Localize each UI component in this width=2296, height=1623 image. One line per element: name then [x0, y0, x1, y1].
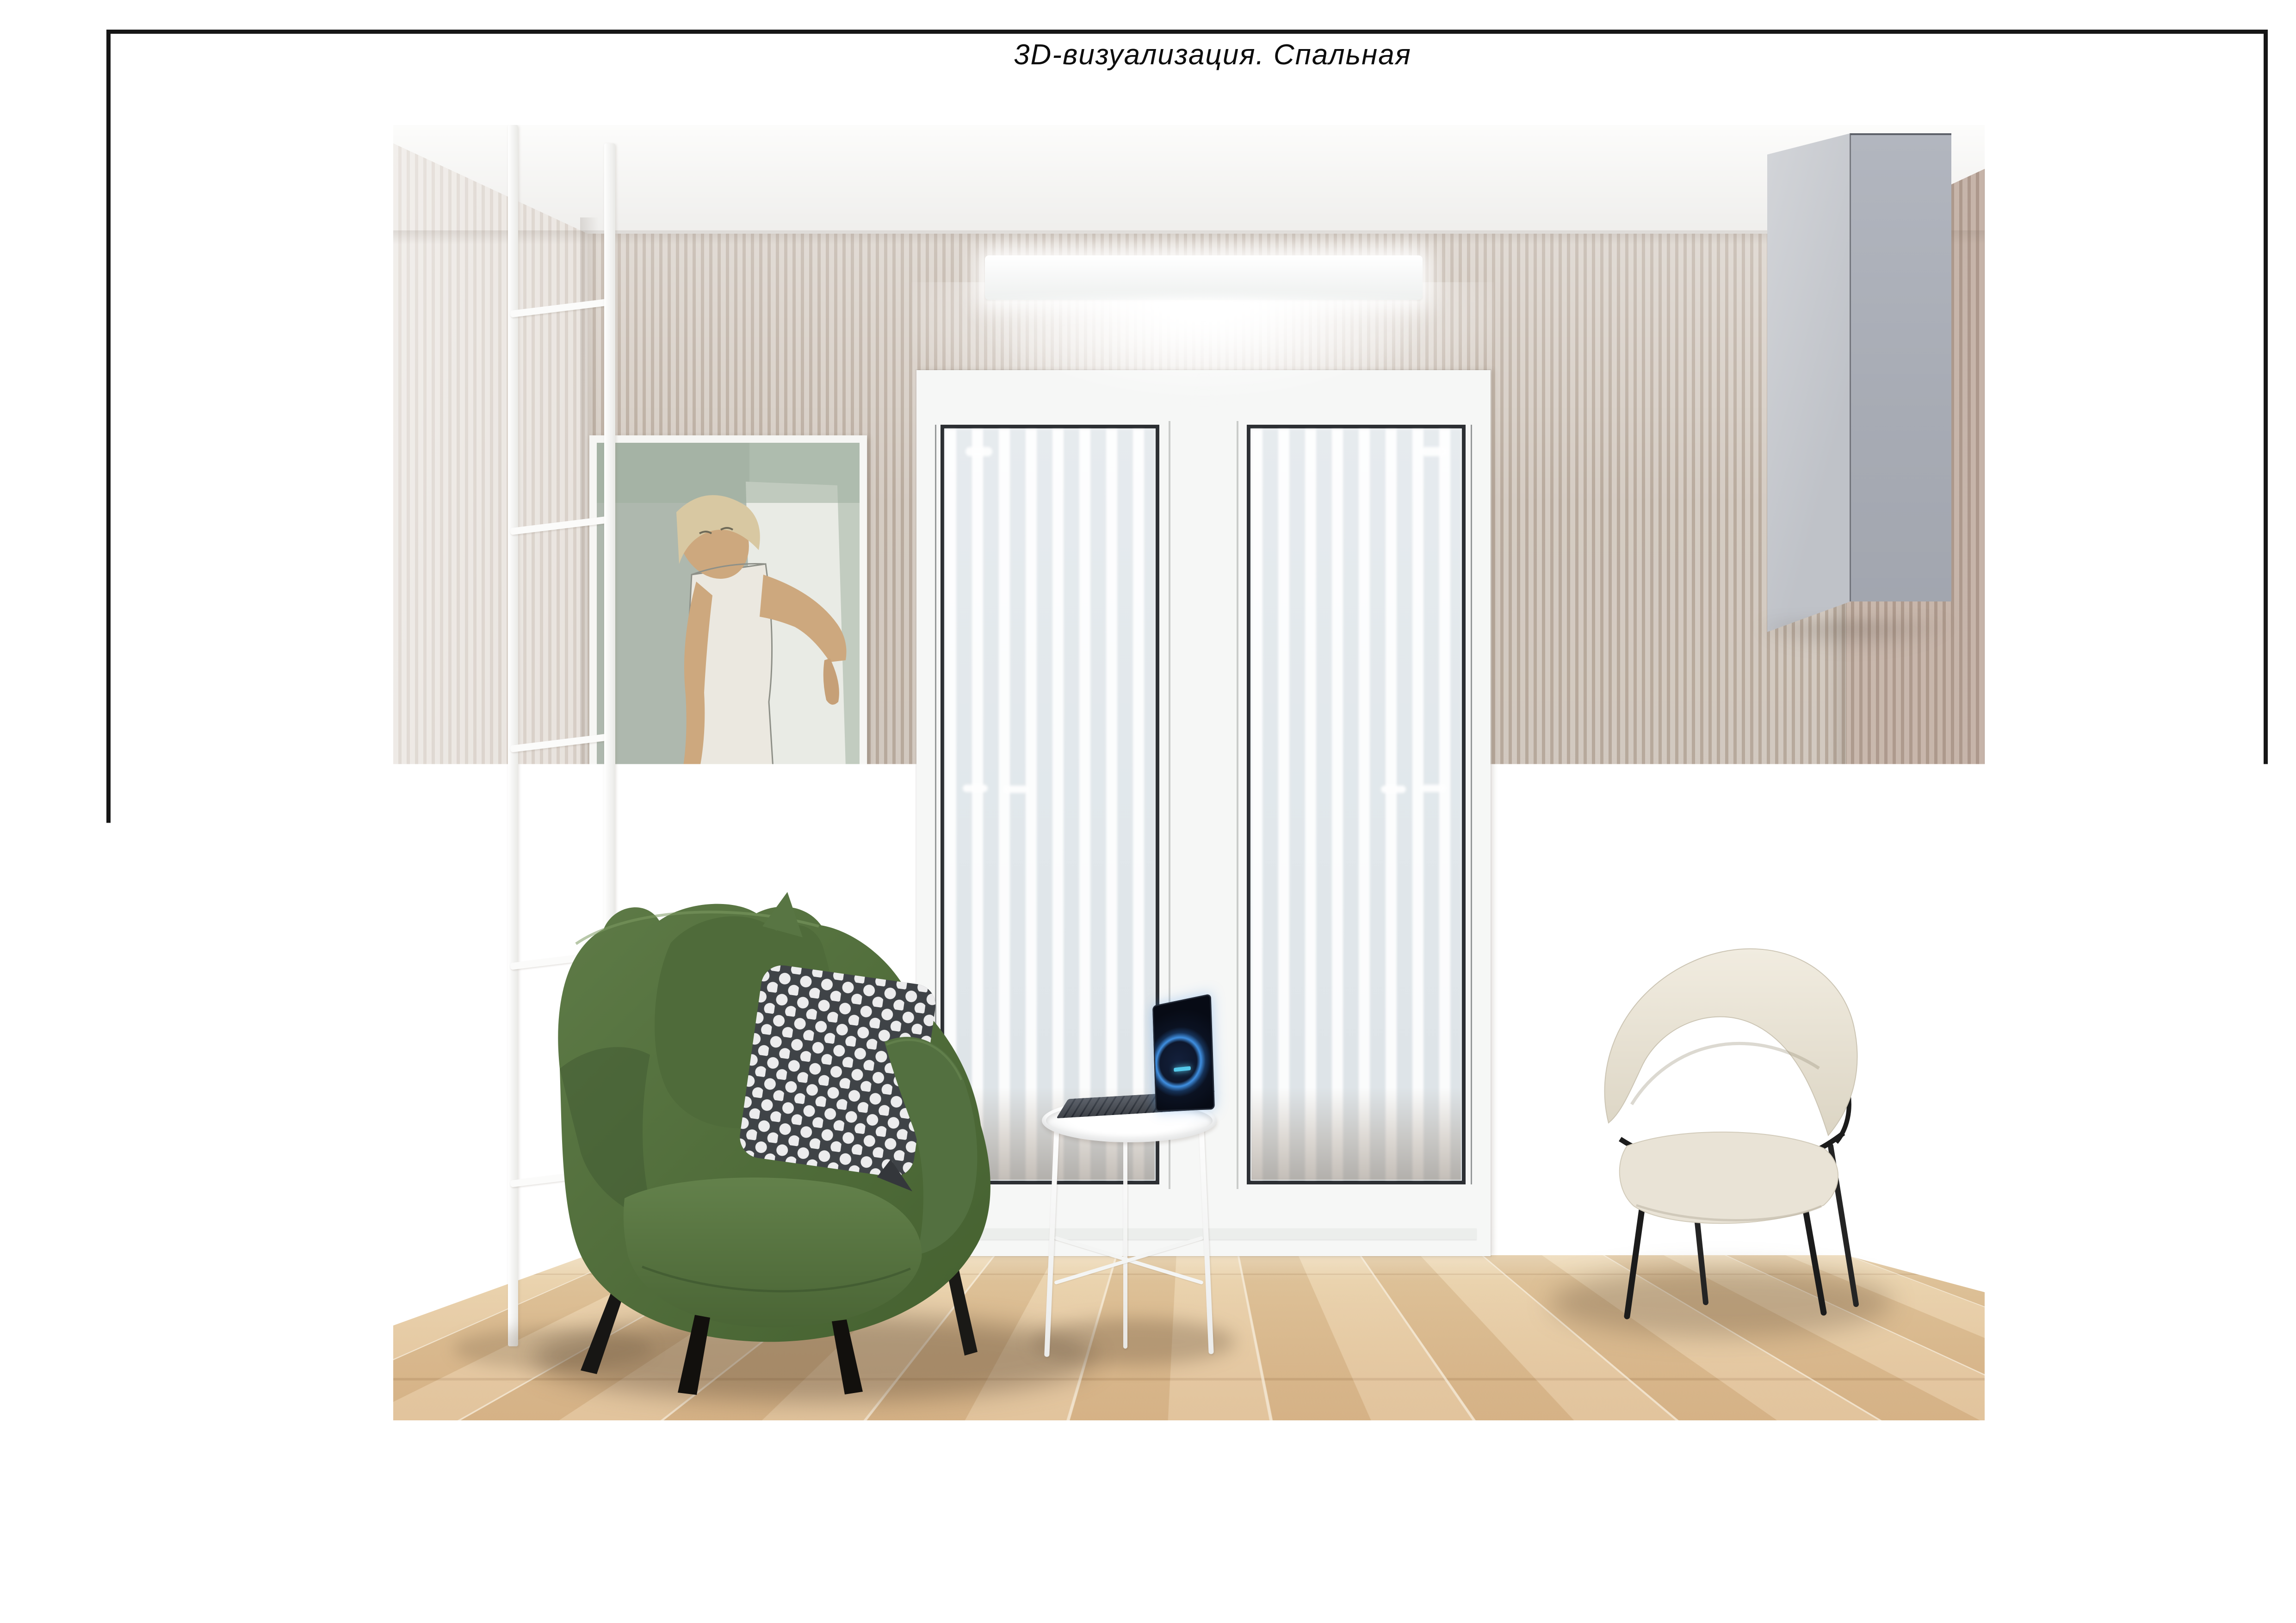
door-sash-edge [1471, 425, 1472, 1184]
glass-highlight [1381, 786, 1406, 793]
ceiling-shadow [393, 230, 1985, 244]
role-value-architect: Бобко В.А. [1669, 1481, 1854, 1506]
meta-value-format: А3 [1547, 1531, 1659, 1588]
cabinet-front-panel [1850, 133, 1951, 601]
glass-reflection-floor [1251, 1087, 1461, 1180]
sheet-title: 3D-визуализация. Спальная [136, 38, 2289, 71]
door-glass-right [1247, 425, 1466, 1184]
role-value-designer: Бобко В.А. [1669, 1451, 1854, 1478]
pereplan-logo-text: Pereplan.by [1879, 1499, 2205, 1594]
meta-value-scale: 1:50 [1755, 1531, 1862, 1588]
ladder-front-post [604, 143, 615, 958]
table-leg [1123, 1131, 1127, 1349]
door-mullion-line [1237, 421, 1238, 1189]
project-address-line1: Дизайн-проект квартиры по адресу: [1050, 1440, 1417, 1462]
meta-header-format: Формат [1547, 1509, 1659, 1529]
drawing-sheet: 3D-визуализация. Спальная [0, 0, 2296, 1623]
glass-highlight [965, 447, 992, 456]
wall-cabinet [1767, 133, 1951, 635]
meta-value-stage: ДП [1458, 1531, 1546, 1588]
role-value-customer [1669, 1425, 1854, 1450]
logo-text-black: plan.by [2004, 1501, 2205, 1593]
project-address-cell: Дизайн-проект квартиры по адресу: ул. Бр… [1050, 1425, 1455, 1506]
logo-text-orange: Pere [1879, 1501, 2004, 1593]
meta-value-sheet: 39 [1660, 1531, 1754, 1588]
sheet-frame: 3D-визуализация. Спальная [106, 30, 2268, 1592]
drawing-title-cell: 3D-визуализация. Лоджия [1050, 1509, 1455, 1588]
glass-highlight [1421, 447, 1448, 456]
glass-highlight [963, 785, 988, 792]
cabinet-side-panel [1767, 133, 1850, 633]
cabinet-door-seam [1850, 133, 1851, 601]
ladder-rear-post [508, 125, 518, 1346]
laptop-screen [1152, 994, 1215, 1112]
glass-highlight [1421, 785, 1446, 792]
glass-highlight [1003, 786, 1028, 793]
role-label-customer: Заказчик [1466, 1425, 1651, 1450]
armchair-graphic [532, 874, 1032, 1406]
role-label-architect: Архитектор [1466, 1481, 1651, 1506]
cream-chair-graphic [1558, 905, 1868, 1323]
framed-artwork [589, 435, 867, 805]
cabinet-shadow [1763, 621, 1957, 653]
meta-header-scale: Масштаб [1755, 1509, 1862, 1529]
title-block: Дизайн-проект квартиры по адресу: ул. Бр… [1047, 1422, 2264, 1588]
sheer-curtain [1251, 429, 1461, 1180]
stamp-grid-line [1455, 1478, 1862, 1479]
table-floor-shadow [1032, 1319, 1235, 1365]
project-address-line2: ул. Братьев Райт, д.Копище, д. 14 [1050, 1470, 1376, 1492]
meta-header-sheet: Лист [1660, 1509, 1754, 1529]
meta-header-stage: Стадия [1458, 1509, 1546, 1529]
ceiling [393, 125, 1985, 234]
cream-chair [1558, 905, 1868, 1323]
render-3d-view [393, 125, 1985, 1420]
led-light-bar [985, 255, 1423, 300]
green-armchair [532, 874, 1032, 1406]
led-light-glow [965, 297, 1443, 403]
artwork-painting [597, 443, 860, 798]
wall-socket [1531, 857, 1602, 894]
role-label-designer: Дизайнер [1466, 1451, 1651, 1478]
